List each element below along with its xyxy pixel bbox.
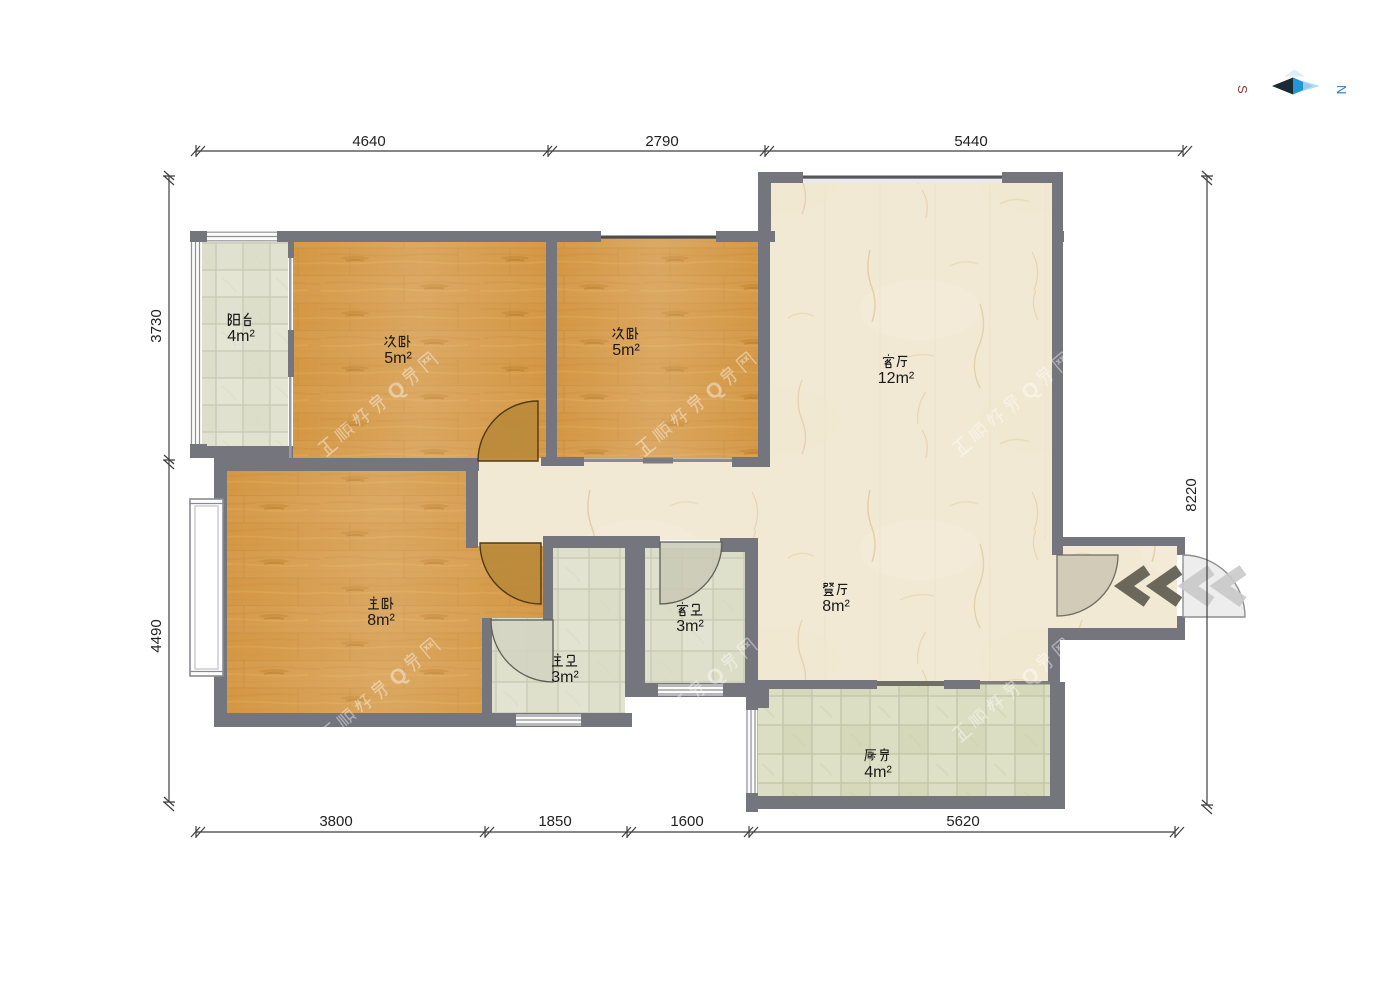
svg-text:4m²: 4m² xyxy=(227,328,255,345)
svg-text:2790: 2790 xyxy=(645,133,678,150)
svg-text:8m²: 8m² xyxy=(822,598,850,615)
svg-text:5m²: 5m² xyxy=(612,342,640,359)
svg-text:1850: 1850 xyxy=(538,813,571,830)
svg-text:5620: 5620 xyxy=(946,813,979,830)
svg-text:3800: 3800 xyxy=(319,813,352,830)
svg-text:3m²: 3m² xyxy=(551,669,579,686)
svg-text:4640: 4640 xyxy=(352,133,385,150)
svg-text:S: S xyxy=(1235,85,1250,94)
svg-text:N: N xyxy=(1334,85,1349,94)
svg-text:5m²: 5m² xyxy=(384,350,412,367)
svg-text:5440: 5440 xyxy=(954,133,987,150)
svg-text:4m²: 4m² xyxy=(864,764,892,781)
svg-text:8m²: 8m² xyxy=(367,612,395,629)
svg-text:8220: 8220 xyxy=(1183,478,1200,511)
svg-text:4490: 4490 xyxy=(148,619,165,652)
svg-text:3m²: 3m² xyxy=(676,618,704,635)
svg-text:1600: 1600 xyxy=(670,813,703,830)
svg-text:12m²: 12m² xyxy=(878,370,915,387)
svg-text:3730: 3730 xyxy=(148,309,165,342)
